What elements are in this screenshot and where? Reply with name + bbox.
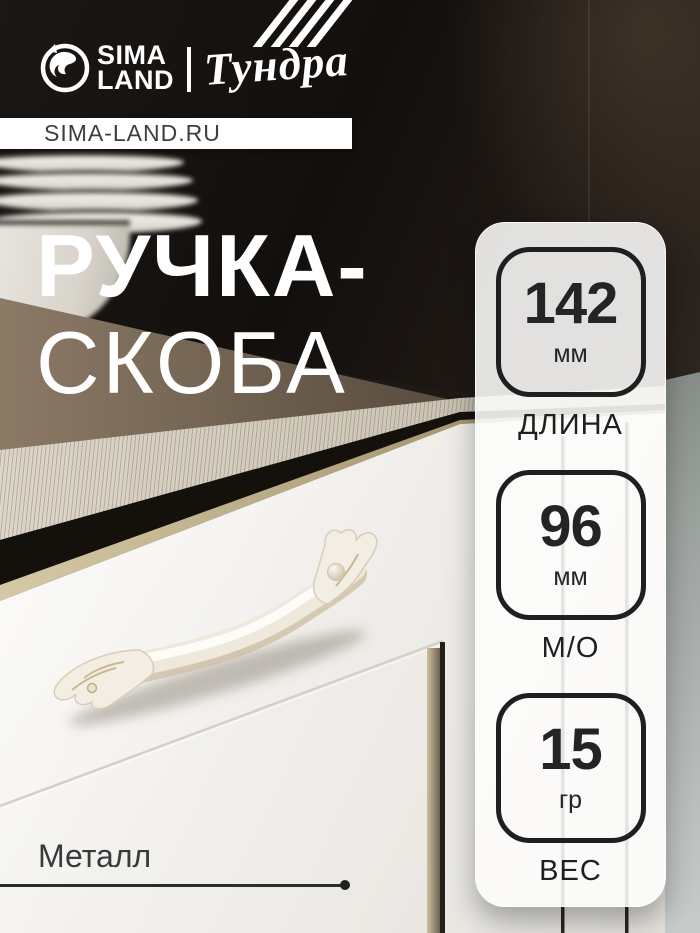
spec-hole-spacing: 96 мм М/О [496, 470, 646, 665]
product-title-line1: РУЧКА- [36, 216, 369, 315]
spec-weight-badge: 15 гр [496, 693, 646, 843]
spec-weight-unit: гр [559, 786, 582, 815]
product-title: РУЧКА- СКОБА [36, 216, 369, 411]
brand-separator [187, 47, 191, 92]
spec-length-label: ДЛИНА [518, 409, 623, 442]
spec-weight-value: 15 [539, 721, 602, 779]
land-line: LAND [97, 68, 174, 93]
material-callout-line [0, 884, 344, 887]
spec-panel: 142 мм ДЛИНА 96 мм М/О 15 гр ВЕС [475, 222, 666, 907]
material-callout-dot [340, 880, 350, 890]
site-url-strip: SIMA-LAND.RU [0, 118, 352, 149]
spec-hole-spacing-label: М/О [542, 632, 600, 665]
spec-hole-spacing-unit: мм [553, 563, 587, 592]
product-title-line2: СКОБА [36, 315, 369, 411]
spec-weight-label: ВЕС [539, 855, 602, 888]
spec-hole-spacing-badge: 96 мм [496, 470, 646, 620]
spec-length-value: 142 [524, 275, 618, 333]
spec-length-unit: мм [553, 340, 587, 369]
spec-weight: 15 гр ВЕС [496, 693, 646, 888]
site-url-text: SIMA-LAND.RU [44, 120, 221, 147]
brand-header: SIMA LAND Тундра [0, 0, 420, 118]
sima-land-wordmark: SIMA LAND [97, 43, 174, 93]
spec-length: 142 мм ДЛИНА [496, 247, 646, 442]
sima-land-whale-icon [38, 40, 92, 94]
spec-length-badge: 142 мм [496, 247, 646, 397]
tundra-logo: Тундра [202, 32, 375, 96]
material-label: Металл [38, 838, 151, 875]
spec-hole-spacing-value: 96 [539, 498, 602, 556]
product-banner: SIMA LAND Тундра SIMA-LAND.RU РУЧКА- СКО… [0, 0, 700, 933]
